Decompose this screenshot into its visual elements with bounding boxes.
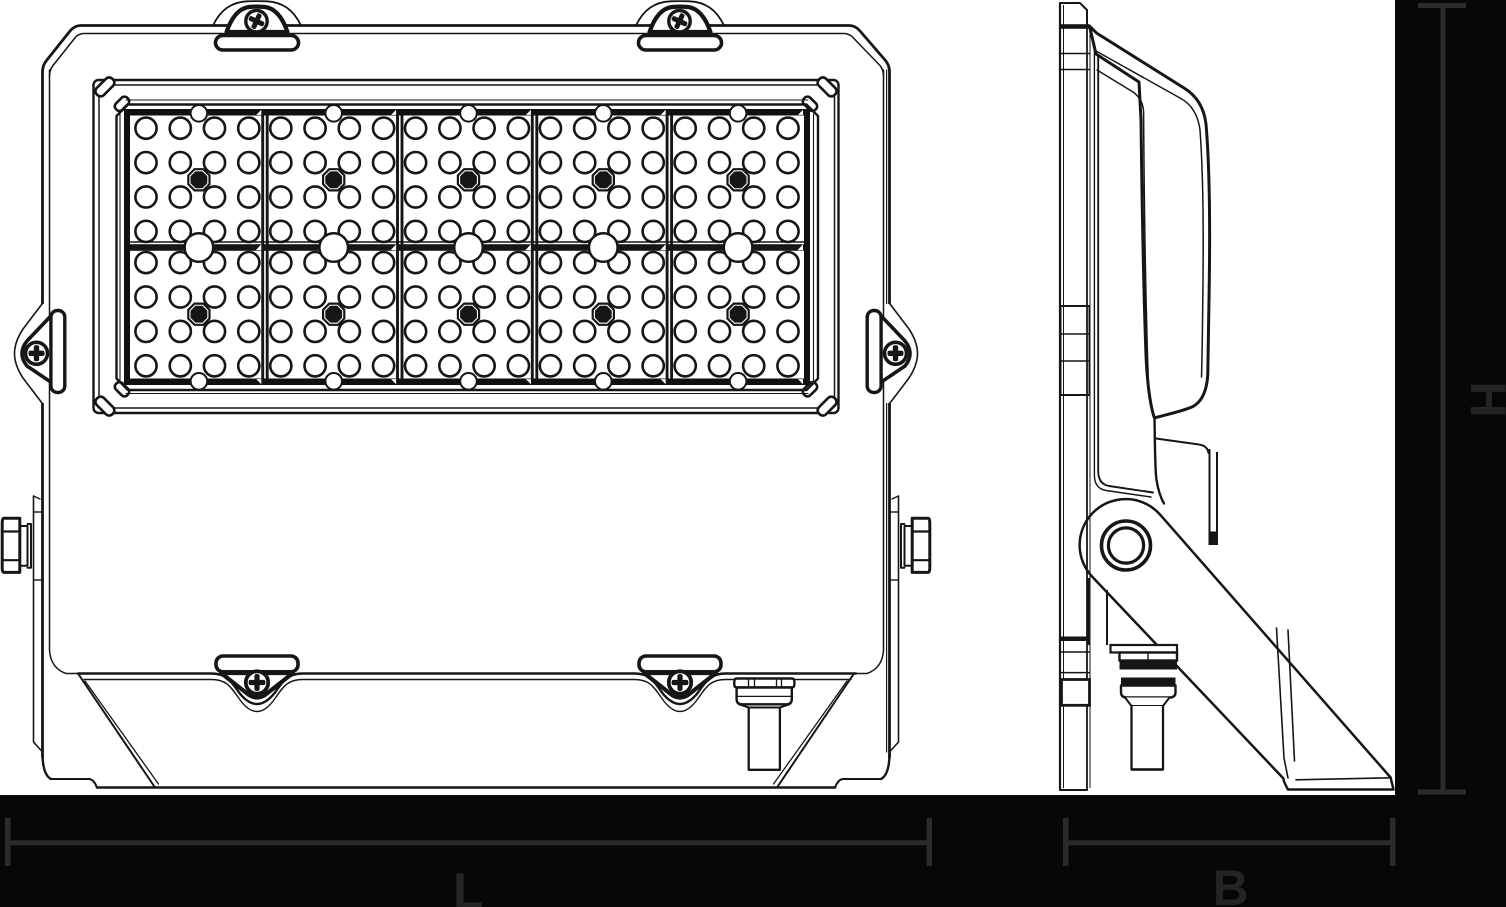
- svg-text:L: L: [453, 863, 484, 907]
- svg-text:B: B: [1213, 860, 1249, 907]
- svg-text:H: H: [1460, 381, 1506, 417]
